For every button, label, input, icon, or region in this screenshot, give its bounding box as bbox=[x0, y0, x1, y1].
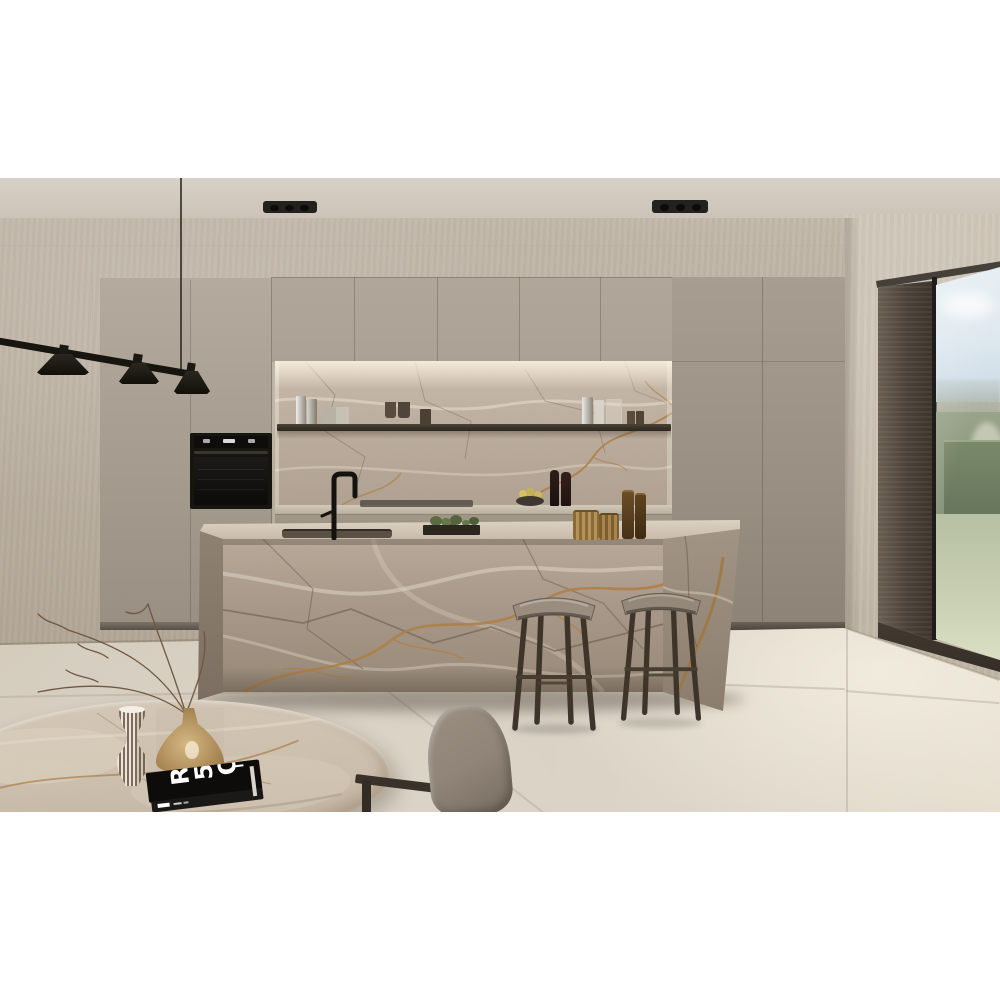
amber-vessel-tall bbox=[635, 493, 646, 539]
window-glass bbox=[936, 262, 1000, 660]
fruit-bowl bbox=[516, 496, 544, 506]
pendant-cable bbox=[180, 178, 182, 371]
glass-pitcher bbox=[606, 399, 622, 427]
spot-lens bbox=[285, 205, 294, 211]
spot-lens bbox=[676, 204, 685, 211]
oven bbox=[190, 433, 272, 509]
amber-vessel-ribbed bbox=[599, 513, 619, 540]
amber-glass-small bbox=[636, 411, 644, 425]
metal-shelf bbox=[277, 424, 671, 431]
shelf-shadow bbox=[277, 431, 671, 439]
grey-cup bbox=[336, 407, 349, 425]
tall-right-doorline bbox=[672, 361, 845, 362]
spot-lens bbox=[660, 204, 669, 211]
grey-cup bbox=[323, 407, 335, 425]
oven-rack-line bbox=[198, 469, 264, 470]
wall-corner-shade bbox=[845, 218, 859, 658]
left-wall-seam bbox=[92, 278, 93, 638]
steel-tumbler bbox=[296, 396, 306, 425]
faucet bbox=[314, 468, 364, 540]
wine-bottle bbox=[550, 470, 559, 506]
spot-lens bbox=[692, 204, 701, 211]
oven-door-glass bbox=[194, 457, 268, 505]
floor-seam bbox=[846, 630, 848, 812]
ceiling-spotlight-left bbox=[263, 201, 317, 213]
amber-vessel-ribbed bbox=[573, 510, 599, 540]
window-jamb bbox=[878, 281, 932, 641]
upper-cabinet-seam bbox=[437, 277, 438, 361]
oven-icon-right bbox=[248, 439, 255, 443]
photo-area: R 5 O bbox=[0, 178, 1000, 812]
amber-glass-small bbox=[627, 411, 635, 425]
carafe bbox=[594, 400, 604, 425]
wine-bottle bbox=[561, 472, 571, 506]
cocktail-shaker bbox=[582, 397, 593, 425]
oven-icon-left bbox=[203, 439, 210, 443]
glass-reflection bbox=[936, 262, 1000, 660]
oven-rack-line bbox=[198, 479, 264, 480]
steel-tumbler bbox=[307, 399, 317, 425]
wall-seam-h bbox=[0, 245, 845, 246]
window-mullion bbox=[932, 277, 937, 640]
dark-glass bbox=[385, 402, 396, 418]
upper-cabinet-seam bbox=[519, 277, 520, 361]
fruit bbox=[526, 488, 534, 496]
ceiling-spotlight-right bbox=[652, 200, 708, 213]
dark-glass bbox=[398, 402, 410, 418]
upper-cabinet-seam bbox=[354, 277, 355, 361]
wall-seam-v2 bbox=[427, 234, 428, 278]
bar-stool-left bbox=[510, 582, 598, 732]
wall-seam-v1 bbox=[218, 236, 219, 278]
amber-vessel-tall bbox=[622, 490, 634, 539]
bar-stool-right bbox=[618, 578, 704, 722]
tall-right-seam bbox=[762, 277, 763, 628]
spot-lens bbox=[300, 205, 309, 211]
chair-leg bbox=[362, 780, 371, 812]
oven-rack-line bbox=[198, 489, 264, 490]
spot-lens bbox=[270, 205, 279, 211]
oven-handle bbox=[194, 451, 268, 454]
induction-hob bbox=[360, 500, 473, 507]
dark-glass bbox=[420, 409, 431, 425]
upper-cabinet-seam bbox=[600, 277, 601, 361]
oven-display bbox=[223, 439, 235, 443]
herb-planter-box bbox=[423, 525, 480, 535]
kitchen-photo: R 5 O bbox=[0, 0, 1000, 1000]
